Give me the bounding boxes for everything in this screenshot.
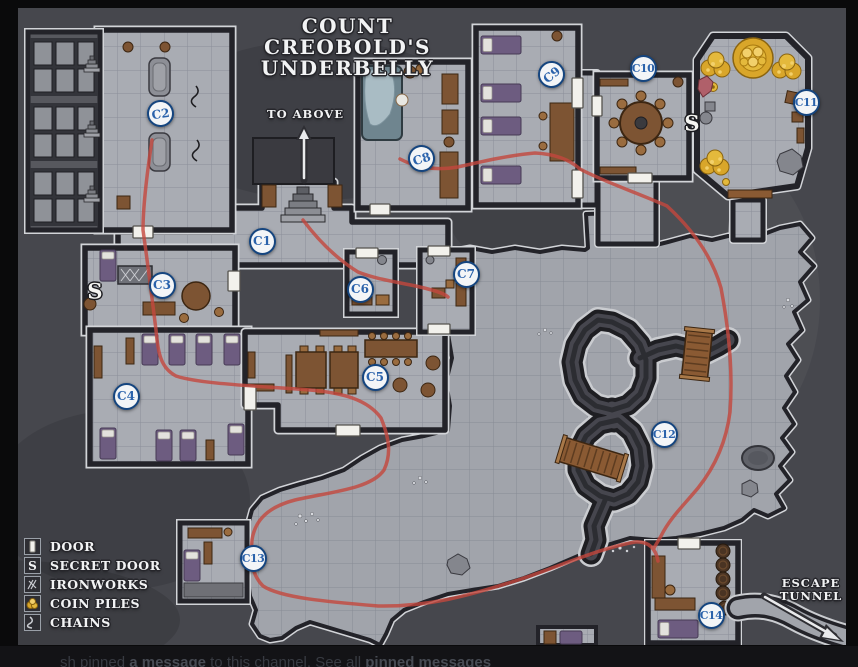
dungeon-map-svg xyxy=(0,0,858,667)
pot xyxy=(123,42,133,52)
prison-cells xyxy=(30,38,100,226)
table xyxy=(550,103,574,161)
room-c14 xyxy=(648,543,738,643)
room-c2 xyxy=(28,30,232,230)
room-c4 xyxy=(90,330,248,464)
treasure-mound xyxy=(733,38,773,78)
bowl xyxy=(396,94,408,106)
room-c5-hall xyxy=(245,330,445,430)
crate xyxy=(117,196,130,209)
room-c7 xyxy=(420,250,472,332)
round-table xyxy=(609,91,673,155)
room-c6 xyxy=(347,252,395,314)
room-c3 xyxy=(84,248,235,332)
room-c11 xyxy=(697,36,808,198)
shelf xyxy=(442,74,458,104)
room-c8 xyxy=(358,62,468,208)
round-table xyxy=(182,282,210,310)
bottom-edge-room-fragment xyxy=(538,627,596,645)
room-c13 xyxy=(180,523,247,601)
stone-platform xyxy=(184,583,243,597)
desk xyxy=(655,598,695,610)
room-c10 xyxy=(597,75,689,178)
wooden-walkway xyxy=(728,190,772,198)
map-screenshot: COUNT CREOBOLD'S UNDERBELLY TO ABOVE ESC… xyxy=(0,0,858,667)
room-c9 xyxy=(476,28,578,205)
